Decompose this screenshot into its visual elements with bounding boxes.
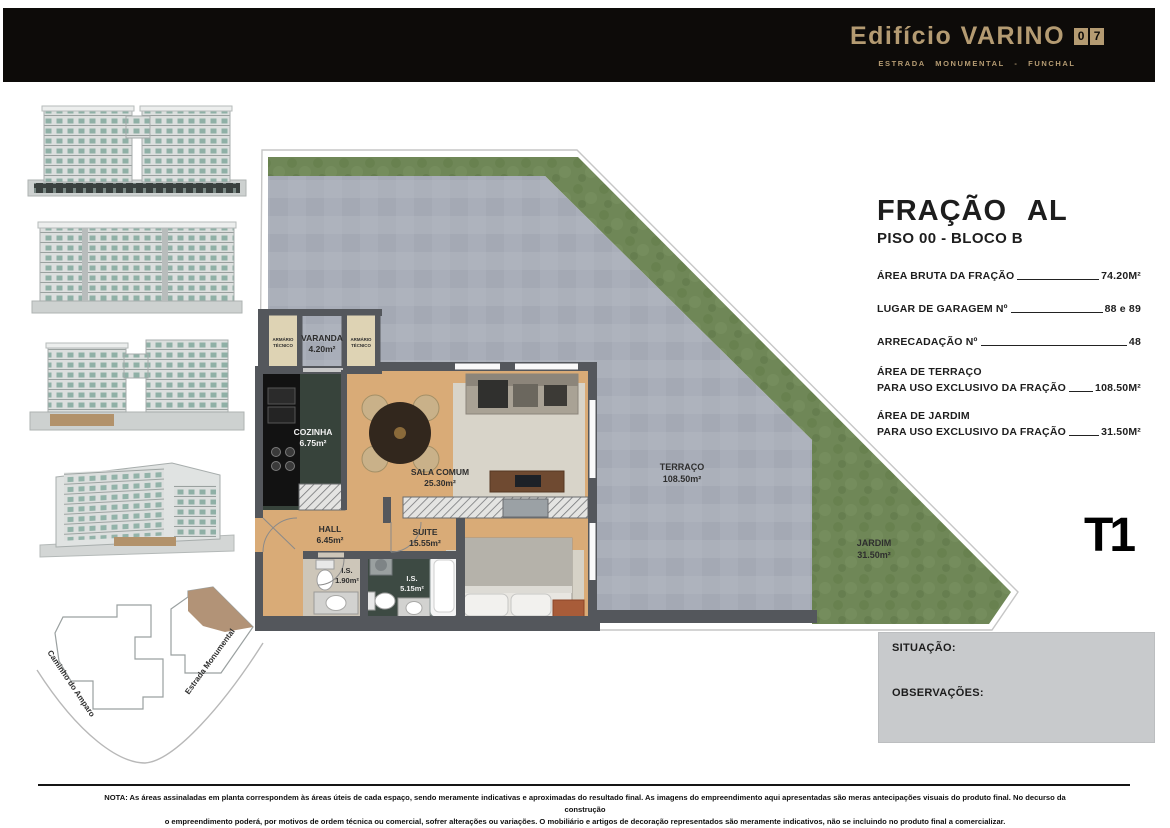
fraction-title: FRAÇÃO AL: [877, 196, 1141, 226]
detail-row-jardim: PARA USO EXCLUSIVO DA FRAÇÃO 31.50M²: [877, 426, 1141, 438]
room-label-is-small: I.S.: [341, 566, 352, 575]
leader-line: [1011, 312, 1103, 313]
situacao-observacoes-box: SITUAÇÃO: OBSERVAÇÕES:: [878, 632, 1155, 743]
microwave: [268, 407, 295, 423]
room-label-armario-left-1: ARMÁRIO: [273, 337, 295, 342]
leader-line: [1017, 279, 1099, 280]
room-area-terraco: 108.50m²: [663, 474, 702, 484]
room-label-terraco: TERRAÇO: [660, 462, 705, 472]
toilet-tank: [316, 560, 334, 569]
detail-label: PARA USO EXCLUSIVO DA FRAÇÃO: [877, 426, 1066, 438]
building-footprint-left: [55, 605, 163, 709]
room-label-hall: HALL: [319, 524, 342, 534]
room-area-jardim: 31.50m²: [857, 550, 891, 560]
plan-sheet-page: Edifício VARINO 0 7 ESTRADA MONUMENTAL -…: [0, 0, 1170, 828]
leader-line: [1069, 435, 1099, 436]
detail-row-area-bruta: ÁREA BRUTA DA FRAÇÃO 74.20M²: [877, 270, 1141, 282]
detail-value: 48: [1129, 336, 1141, 348]
wardrobe: [403, 497, 588, 518]
site-plan: Caminho do Amparo Estrada Monumental: [25, 585, 270, 775]
detail-value: 31.50M²: [1101, 426, 1141, 438]
detail-label: ÁREA BRUTA DA FRAÇÃO: [877, 270, 1014, 282]
room-label-sala: SALA COMUM: [411, 467, 469, 477]
detail-label-terraco-top: ÁREA DE TERRAÇO: [877, 366, 982, 378]
room-label-suite: SUITE: [412, 527, 437, 537]
leader-line: [1069, 391, 1093, 392]
pillow: [464, 594, 508, 616]
fraction-panel: FRAÇÃO AL PISO 00 - BLOCO B ÁREA BRUTA D…: [877, 196, 1141, 247]
room-area-is-large: 5.15m²: [400, 584, 424, 593]
wardrobe-sliding-door: [503, 499, 548, 517]
hob-burner: [272, 448, 281, 457]
detail-value: 108.50M²: [1095, 382, 1141, 394]
room-label-armario-right-2: TÉCNICO: [351, 343, 371, 348]
detail-value: 74.20M²: [1101, 270, 1141, 282]
footer-note-line1: NOTA: As áreas assinaladas em planta cor…: [85, 792, 1085, 816]
detail-label: ARRECADAÇÃO Nº: [877, 336, 978, 348]
room-area-is-small: 1.90m²: [335, 576, 359, 585]
room-label-varanda: VARANDA: [301, 333, 343, 343]
detail-label: LUGAR DE GARAGEM Nº: [877, 303, 1008, 315]
room-label-armario-right-1: ARMÁRIO: [351, 337, 373, 342]
leader-line: [981, 345, 1127, 346]
toilet: [317, 570, 333, 590]
typology-logo: T1: [1084, 508, 1132, 563]
room-area-suite: 15.55m²: [409, 538, 441, 548]
room-label-cozinha: COZINHA: [294, 427, 333, 437]
detail-value: 88 e 89: [1105, 303, 1141, 315]
kitchen-cabinet: [299, 484, 345, 510]
footer-note: NOTA: As áreas assinaladas em planta cor…: [85, 792, 1085, 828]
room-label-armario-left-2: TÉCNICO: [273, 343, 293, 348]
room-label-jardim: JARDIM: [857, 538, 892, 548]
room-label-is-large: I.S.: [406, 574, 417, 583]
bed-bench: [553, 600, 584, 617]
detail-row-garagem: LUGAR DE GARAGEM Nº 88 e 89: [877, 303, 1141, 315]
detail-row-arrecadacao: ARRECADAÇÃO Nº 48: [877, 336, 1141, 348]
footer-divider: [38, 784, 1130, 786]
observacoes-label: OBSERVAÇÕES:: [892, 687, 984, 699]
footer-note-line2: o empreendimento poderá, por motivos de …: [85, 816, 1085, 828]
detail-row-terraco: PARA USO EXCLUSIVO DA FRAÇÃO 108.50M²: [877, 382, 1141, 394]
oven: [268, 388, 295, 404]
detail-label-jardim-top: ÁREA DE JARDIM: [877, 410, 970, 422]
room-area-cozinha: 6.75m²: [300, 438, 327, 448]
toilet-2: [375, 593, 395, 609]
room-area-varanda: 4.20m²: [309, 344, 336, 354]
detail-label: PARA USO EXCLUSIVO DA FRAÇÃO: [877, 382, 1066, 394]
room-area-hall: 6.45m²: [317, 535, 344, 545]
room-area-sala: 25.30m²: [424, 478, 456, 488]
fraction-floor: PISO 00 - BLOCO B: [877, 230, 1141, 247]
situacao-label: SITUAÇÃO:: [892, 642, 956, 654]
